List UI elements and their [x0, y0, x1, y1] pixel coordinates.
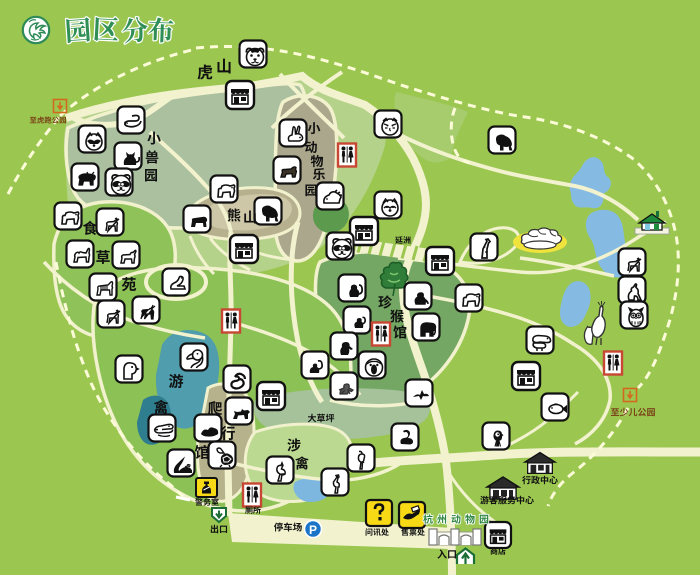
svg-text:P: P: [309, 523, 317, 537]
